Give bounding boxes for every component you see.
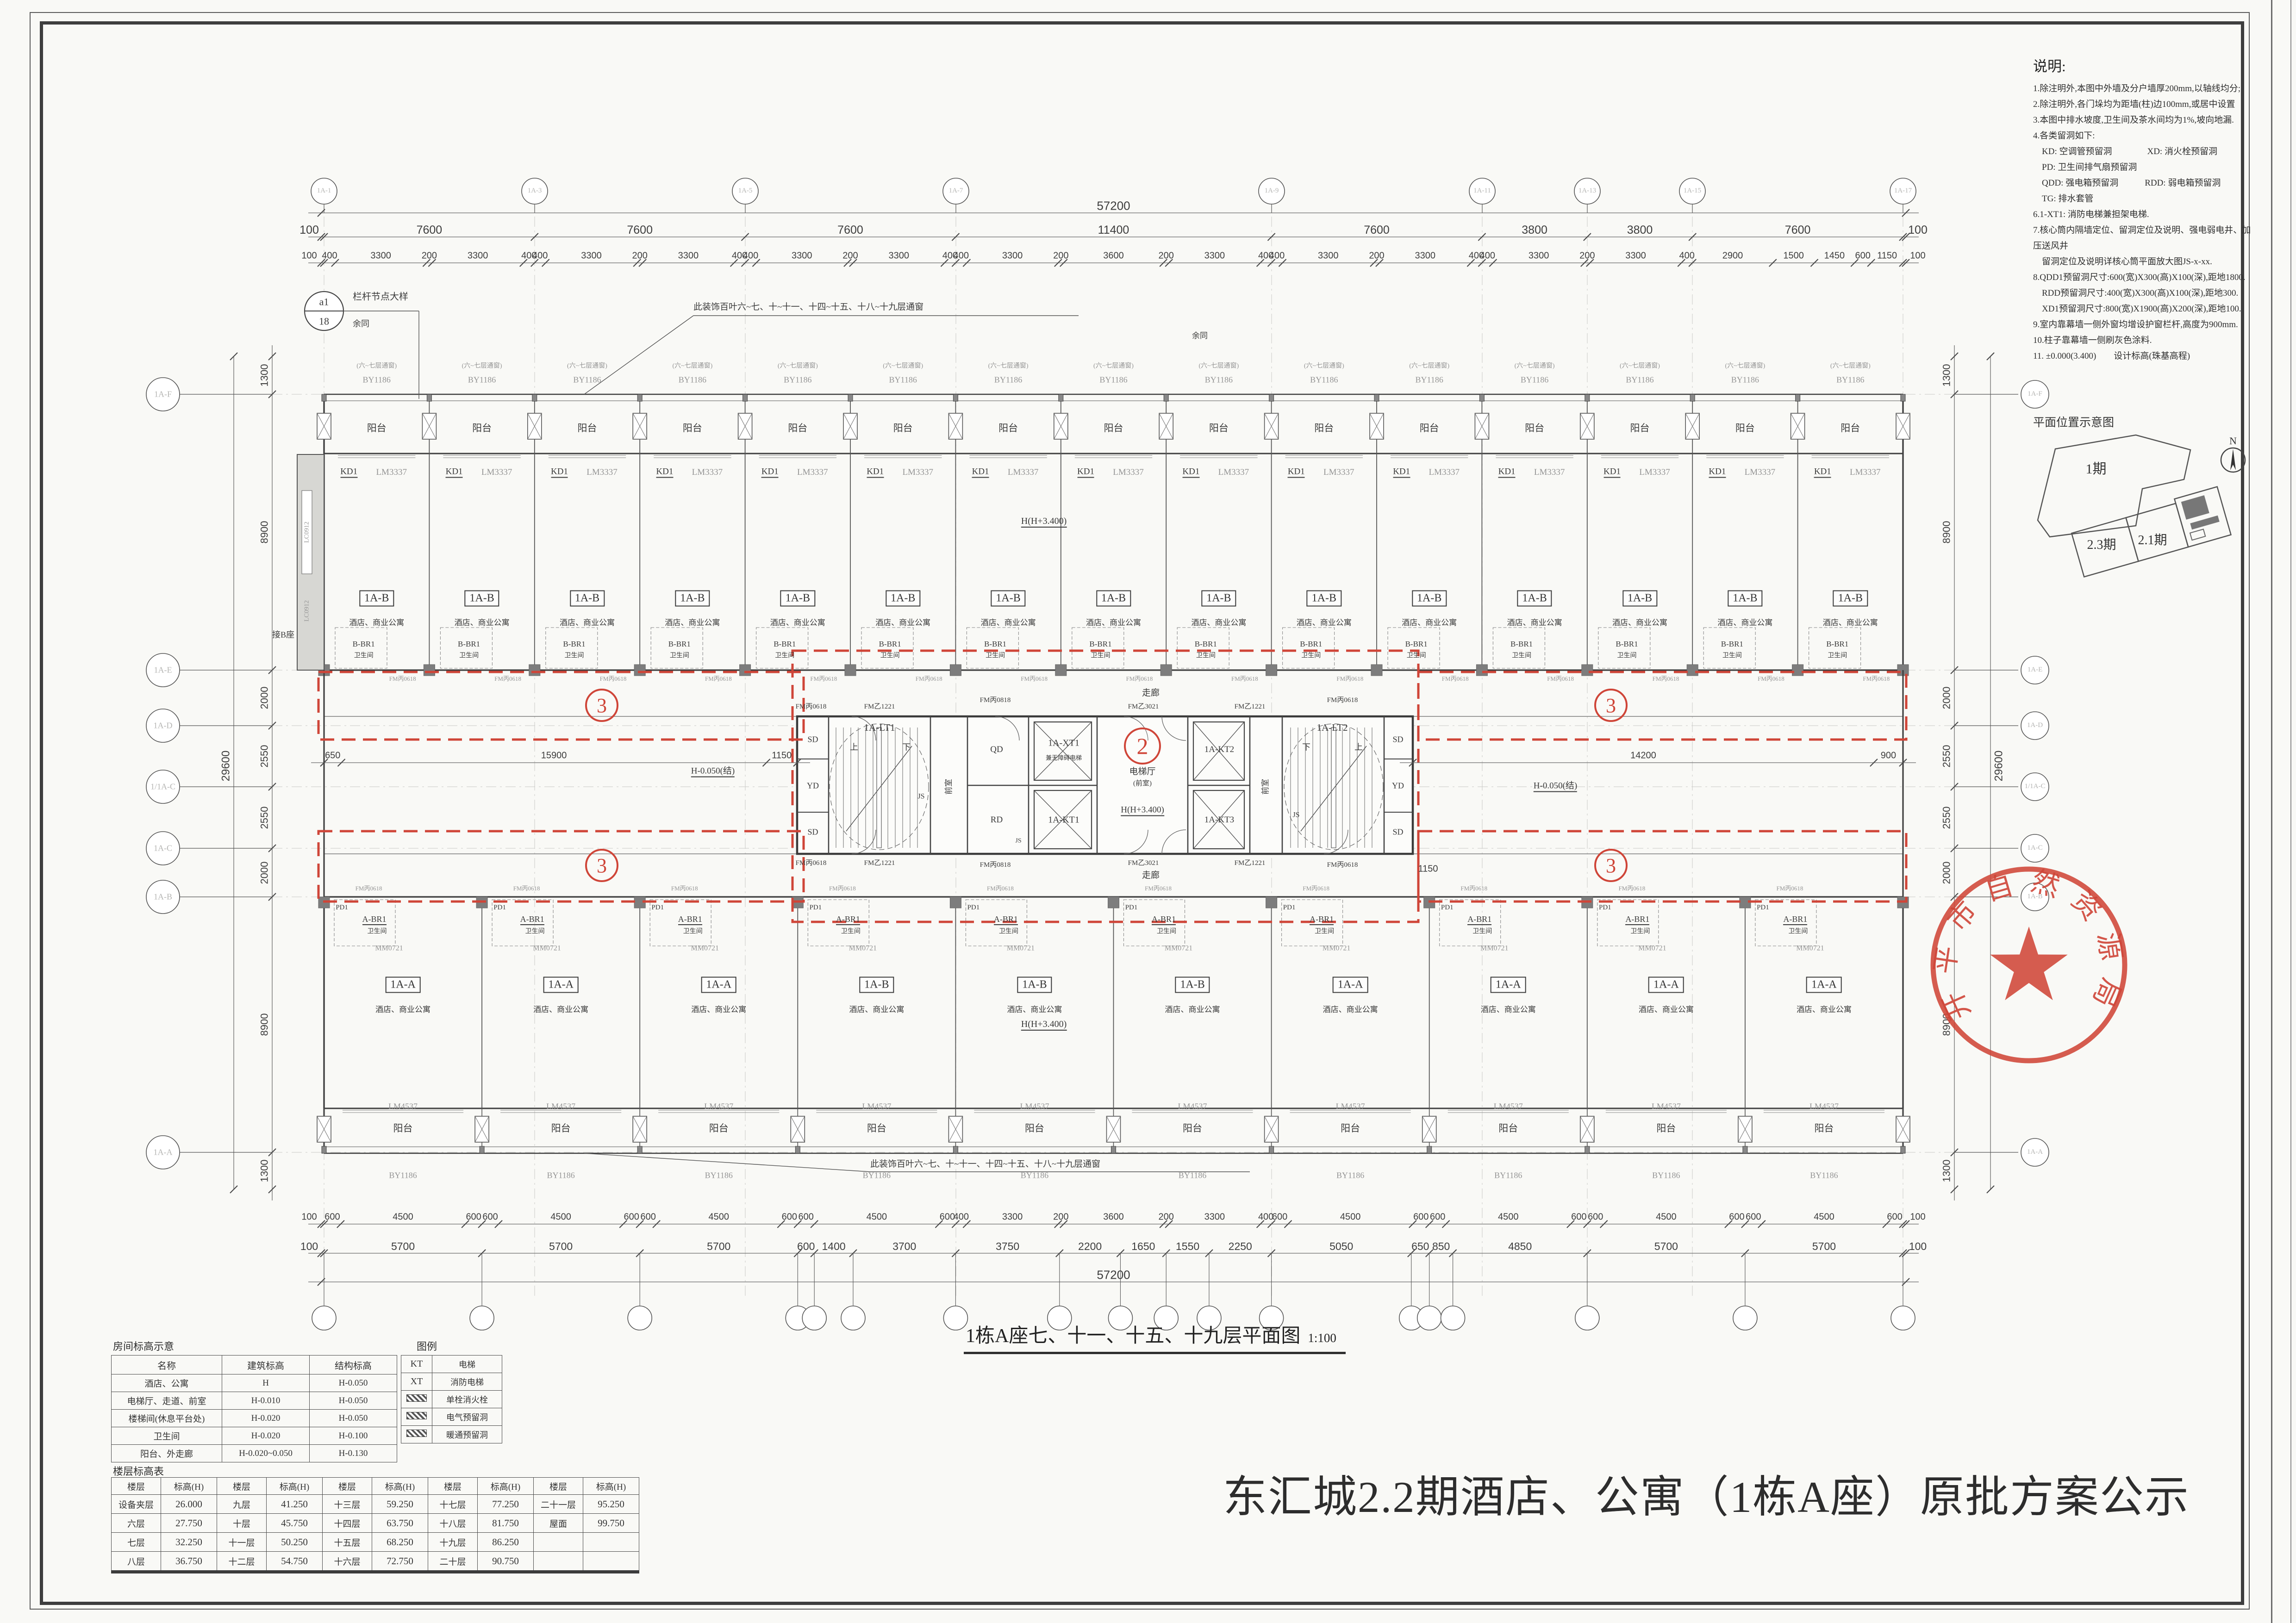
parapet-post: [953, 1146, 958, 1153]
grid-bubble: [1891, 1306, 1915, 1330]
note-line-3: 3.本图中排水坡度,卫生间及茶水间均为1%,坡向地漏.: [2033, 112, 2253, 128]
parapet-post: [1269, 394, 1274, 401]
floor-table-cell: 26.000: [161, 1495, 217, 1514]
grid-bubble: [1733, 1306, 1757, 1330]
bathroom-outline: [1440, 900, 1501, 946]
parapet-post: [795, 1146, 800, 1153]
room-table-cell: H-0.050: [310, 1410, 397, 1427]
keyplan-phase21-parcel: [2126, 504, 2189, 561]
floor-table-cell: 77.250: [478, 1495, 534, 1514]
note-line-8: TG: 排水套管: [2033, 191, 2253, 207]
note-line-12: 8.QDD1预留洞尺寸:600(宽)X300(高)X100(深),距地1800.: [2033, 270, 2253, 286]
legend-text: 消防电梯: [432, 1373, 502, 1391]
bathroom-outline: [492, 900, 553, 946]
parapet-post: [1269, 1146, 1274, 1153]
column: [1582, 665, 1593, 676]
column: [529, 665, 540, 676]
floor-table-cell: [534, 1533, 583, 1552]
floor-table-cell: 六层: [112, 1514, 161, 1533]
review-dashed-box: [1418, 672, 1906, 740]
note-line-5: KD: 空调管预留洞 XD: 消火栓预留洞: [2033, 144, 2253, 160]
legend-symbol: [401, 1391, 432, 1408]
legend-symbol: XT: [401, 1373, 432, 1391]
legend-text: 暖通预留洞: [432, 1426, 502, 1443]
parapet-post: [1901, 1146, 1905, 1153]
parapet-post: [322, 1146, 326, 1153]
grid-bubble: [146, 1136, 180, 1169]
notes-title: 说明:: [2033, 55, 2253, 75]
grid-bubble: [2021, 656, 2049, 684]
parapet-post: [1585, 1146, 1590, 1153]
grid-bubble: [146, 770, 180, 803]
grid-bubble: [1575, 1306, 1599, 1330]
floor-table-cell: 二十层: [428, 1552, 478, 1572]
official-stamp: 开平市自然资源局: [1925, 861, 2136, 1072]
review-dashed-box: [1418, 831, 1906, 902]
parapet-post: [848, 394, 853, 401]
room-table-cell: 阳台、外走廊: [112, 1445, 222, 1462]
note-line-9: 6.1-XT1: 消防电梯兼担架电梯.: [2033, 207, 2253, 223]
floor-level-table: 楼层标高(H)楼层标高(H)楼层标高(H)楼层标高(H)楼层标高(H)设备夹层2…: [111, 1477, 639, 1573]
bathroom-outline: [334, 900, 395, 946]
notes-lines: 1.除注明外,本图中外墙及分户墙厚200mm,以轴线均分;2.除注明外,各门垛均…: [2033, 81, 2253, 364]
legend-table: KT电梯XT消防电梯单栓消火栓电气预留洞暖通预留洞: [401, 1355, 502, 1443]
bathroom-outline: [440, 628, 492, 668]
parapet-post: [1901, 394, 1905, 401]
note-line-4: 4.各类留洞如下:: [2033, 128, 2253, 144]
grid-bubble: [146, 832, 180, 865]
note-line-2: 2.除注明外,各门垛均为距墙(柱)边100mm,或居中设置: [2033, 97, 2253, 112]
parapet-post: [480, 1146, 484, 1153]
bathroom-outline: [650, 900, 711, 946]
parapet-post: [637, 394, 642, 401]
column: [1108, 897, 1119, 908]
floor-table-header: 标高(H): [372, 1478, 428, 1495]
grid-bubble: [146, 880, 180, 914]
parapet-post: [953, 394, 958, 401]
floor-table-header: 楼层: [534, 1478, 583, 1495]
column: [740, 665, 751, 676]
floor-table-cell: 27.750: [161, 1514, 217, 1533]
floor-table-cell: 十一层: [217, 1533, 267, 1552]
parapet-post: [427, 394, 431, 401]
floor-table-cell: 十六层: [323, 1552, 372, 1572]
floor-table-cell: 99.750: [583, 1514, 639, 1533]
left-annex-window: [302, 491, 312, 574]
parapet-post: [637, 1146, 642, 1153]
legend-symbol-chip: [406, 1430, 427, 1437]
floor-table-header: 楼层: [323, 1478, 372, 1495]
grid-bubble: [841, 1306, 865, 1330]
grid-bubble: [1441, 1306, 1465, 1330]
legend-symbol: [401, 1408, 432, 1426]
floor-table-cell: 50.250: [267, 1533, 323, 1552]
note-line-16: 10.柱子靠幕墙一侧刷灰色涂料.: [2033, 333, 2253, 348]
grid-bubble: [1469, 178, 1495, 204]
room-table-title: 房间标高示意: [113, 1338, 174, 1353]
bathroom-outline: [651, 628, 703, 668]
floor-table-cell: 十二层: [217, 1552, 267, 1572]
parapet-post: [1111, 1146, 1116, 1153]
floor-table-header: 楼层: [428, 1478, 478, 1495]
bathroom-outline: [1598, 628, 1650, 668]
floor-table-header: 标高(H): [478, 1478, 534, 1495]
room-table-header: 结构标高: [310, 1356, 397, 1374]
parapet-post: [743, 394, 748, 401]
floor-table-header: 楼层: [217, 1478, 267, 1495]
room-table-cell: H-0.100: [310, 1427, 397, 1445]
floor-table-cell: 41.250: [267, 1495, 323, 1514]
room-table-cell: H-0.050: [310, 1374, 397, 1392]
grid-bubble: [1417, 1306, 1441, 1330]
grid-bubble: [802, 1306, 826, 1330]
floor-table-cell: 二十一层: [534, 1495, 583, 1514]
parapet-post: [532, 394, 537, 401]
grid-bubble: [470, 1306, 494, 1330]
room-table-cell: 电梯厅、走道、前室: [112, 1392, 222, 1410]
floor-table-cell: 68.250: [372, 1533, 428, 1552]
bathroom-outline: [861, 628, 913, 668]
floor-table-cell: 十九层: [428, 1533, 478, 1552]
keyplan-phase1-label: 1期: [2086, 461, 2107, 477]
room-table-header: 名称: [112, 1356, 222, 1374]
room-table-cell: H-0.130: [310, 1445, 397, 1462]
keyplan-title: 平面位置示意图: [2033, 413, 2114, 430]
column: [1476, 665, 1487, 676]
legend-symbol: KT: [401, 1356, 432, 1373]
floor-table-cell: 36.750: [161, 1552, 217, 1572]
floor-table-header: 标高(H): [267, 1478, 323, 1495]
legend-text: 单栓消火栓: [432, 1391, 502, 1408]
floor-table-cell: 81.750: [478, 1514, 534, 1533]
column: [424, 665, 435, 676]
grid-bubble: [1259, 178, 1285, 204]
note-line-14: XD1预留洞尺寸:800(宽)X1900(高)X200(深),距地100.: [2033, 301, 2253, 317]
plan-caption: 1栋A座七、十一、十五、十九层平面图1:100: [964, 1320, 1346, 1354]
floor-table-cell: 十三层: [323, 1495, 372, 1514]
room-table-cell: H-0.020: [222, 1410, 310, 1427]
parapet-post: [1479, 394, 1484, 401]
wall-line: [584, 1153, 870, 1172]
column: [1055, 665, 1067, 676]
floor-table-cell: 32.250: [161, 1533, 217, 1552]
floor-table-cell: 十四层: [323, 1514, 372, 1533]
column: [845, 665, 856, 676]
parapet-post: [1743, 1146, 1747, 1153]
note-line-13: RDD预留洞尺寸:400(宽)X300(高)X100(深),距地300.: [2033, 286, 2253, 301]
parapet-post: [1796, 394, 1800, 401]
room-table-cell: H: [222, 1374, 310, 1392]
floor-table-header: 标高(H): [583, 1478, 639, 1495]
floor-table-cell: [534, 1552, 583, 1572]
grid-bubble: [2021, 1138, 2049, 1166]
keyplan-phase21-label: 2.1期: [2138, 533, 2167, 547]
floor-table-cell: 九层: [217, 1495, 267, 1514]
floor-table-cell: 屋面: [534, 1514, 583, 1533]
parapet-post: [1427, 1146, 1432, 1153]
column: [1792, 665, 1803, 676]
review-dashed-box: [318, 831, 804, 902]
floor-table-cell: 十五层: [323, 1533, 372, 1552]
bathroom-outline: [1283, 628, 1335, 668]
floor-table-cell: [583, 1533, 639, 1552]
bathroom-outline: [1388, 628, 1440, 668]
bathroom-outline: [1703, 628, 1755, 668]
floor-table-cell: 45.750: [267, 1514, 323, 1533]
floor-table-cell: 95.250: [583, 1495, 639, 1514]
grid-bubble: [522, 178, 548, 204]
grid-bubble: [1890, 178, 1916, 204]
north-arrow-needle: [2230, 449, 2236, 470]
column: [1266, 897, 1277, 908]
bathroom-outline: [967, 628, 1018, 668]
note-line-6: PD: 卫生间排气扇预留洞: [2033, 160, 2253, 175]
public-notice-title: 东汇城2.2期酒店、公寓（1栋A座）原批方案公示: [1223, 1461, 2232, 1525]
plan-caption-scale: 1:100: [1308, 1331, 1336, 1345]
review-dashed-box: [318, 672, 804, 740]
bathroom-outline: [335, 628, 387, 668]
room-table-cell: 卫生间: [112, 1427, 222, 1445]
room-table-cell: 酒店、公寓: [112, 1374, 222, 1392]
grid-bubble: [1574, 178, 1600, 204]
column: [950, 897, 961, 908]
parapet-post: [1164, 394, 1168, 401]
legend-symbol: [401, 1426, 432, 1443]
note-line-1: 1.除注明外,本图中外墙及分户墙厚200mm,以轴线均分;: [2033, 81, 2253, 97]
floor-table-cell: 90.750: [478, 1552, 534, 1572]
bathroom-outline: [1597, 900, 1659, 946]
grid-bubble: [146, 709, 180, 742]
keyplan-building-block-2: [2190, 516, 2219, 530]
parapet-post: [322, 394, 326, 401]
room-table-cell: H-0.020~0.050: [222, 1445, 310, 1462]
grid-bubble: [2021, 380, 2049, 408]
room-table-cell: H-0.020: [222, 1427, 310, 1445]
plan-caption-text: 1栋A座七、十一、十五、十九层平面图: [966, 1325, 1300, 1347]
floor-table-cell: 八层: [112, 1552, 161, 1572]
grid-bubble: [146, 653, 180, 687]
note-line-15: 9.室内靠幕墙一侧外窗均增设护窗栏杆,高度为900mm.: [2033, 317, 2253, 333]
column: [1160, 665, 1172, 676]
stamp-star: [1990, 927, 2067, 1000]
parapet-post: [1059, 394, 1063, 401]
floor-table-cell: 十七层: [428, 1495, 478, 1514]
north-label: N: [2229, 435, 2237, 447]
column: [1266, 665, 1277, 676]
grid-bubble: [628, 1306, 652, 1330]
grid-bubble: [2021, 773, 2049, 801]
keyplan-phase23-label: 2.3期: [2087, 538, 2116, 552]
floor-table-cell: 59.250: [372, 1495, 428, 1514]
note-line-17: 11. ±0.000(3.400) 设计标高(珠基高程): [2033, 348, 2253, 364]
floor-table-header: 楼层: [112, 1478, 161, 1495]
grid-bubble: [146, 378, 180, 411]
note-line-10: 7.核心筒内隔墙定位、留洞定位及说明、强电弱电井、加压送风井: [2033, 223, 2253, 254]
bathroom-outline: [1072, 628, 1124, 668]
room-table-header: 建筑标高: [222, 1356, 310, 1374]
note-line-7: QDD: 强电箱预留洞 RDD: 弱电箱预留洞: [2033, 175, 2253, 191]
floor-table-cell: 十八层: [428, 1514, 478, 1533]
floor-table-title: 楼层标高表: [113, 1463, 164, 1478]
floor-table-cell: [583, 1552, 639, 1572]
floor-table-cell: 十层: [217, 1514, 267, 1533]
bathroom-outline: [1755, 900, 1816, 946]
grid-bubble: [311, 178, 337, 204]
bathroom-outline: [546, 628, 598, 668]
keyplan-building-block-3: [2190, 529, 2205, 540]
bathroom-outline: [756, 628, 808, 668]
legend-symbol-chip: [406, 1394, 427, 1402]
grid-bubble: [943, 178, 969, 204]
grid-bubble: [2021, 834, 2049, 862]
room-table-cell: H-0.010: [222, 1392, 310, 1410]
legend-symbol-chip: [406, 1412, 427, 1419]
grid-bubble: [1679, 178, 1705, 204]
stair-rail: [877, 728, 881, 848]
parapet-post: [1690, 394, 1695, 401]
floor-table-cell: 72.750: [372, 1552, 428, 1572]
floor-table-cell: 86.250: [478, 1533, 534, 1552]
grid-bubble: [732, 178, 758, 204]
floor-table-header: 标高(H): [161, 1478, 217, 1495]
parapet-post: [1585, 394, 1590, 401]
legend-text: 电气预留洞: [432, 1408, 502, 1426]
floor-table-cell: 63.750: [372, 1514, 428, 1533]
wall-line: [584, 316, 693, 394]
grid-bubble: [2021, 712, 2049, 740]
column: [1687, 665, 1698, 676]
floor-table-cell: 七层: [112, 1533, 161, 1552]
keyplan-building-block: [2181, 495, 2209, 520]
bathroom-outline: [966, 900, 1027, 946]
grid-bubble: [312, 1306, 336, 1330]
legend-text: 电梯: [432, 1356, 502, 1373]
column: [950, 665, 961, 676]
note-line-11: 留洞定位及说明详核心筒平面放大图JS-x-xx.: [2033, 254, 2253, 270]
bathroom-outline: [1809, 628, 1861, 668]
room-level-table: 名称建筑标高结构标高酒店、公寓HH-0.050电梯厅、走道、前室H-0.010H…: [111, 1355, 397, 1462]
floor-table-cell: 设备夹层: [112, 1495, 161, 1514]
legend-title: 图例: [417, 1338, 437, 1353]
parapet-post: [1374, 394, 1379, 401]
room-table-cell: H-0.050: [310, 1392, 397, 1410]
keyplan-map: 1期 2.3期 2.1期 N: [2031, 429, 2253, 582]
column: [1371, 665, 1382, 676]
floor-table-cell: 54.750: [267, 1552, 323, 1572]
bathroom-outline: [1493, 628, 1545, 668]
notes-block: 说明: 1.除注明外,本图中外墙及分户墙厚200mm,以轴线均分;2.除注明外,…: [2033, 55, 2253, 364]
drawing-sheet: 3333257200100760076007600114007600380038…: [0, 0, 2296, 1623]
column: [634, 665, 645, 676]
bathroom-outline: [1177, 628, 1229, 668]
room-table-cell: 楼梯间(休息平台处): [112, 1410, 222, 1427]
stair-rail: [1331, 728, 1336, 848]
